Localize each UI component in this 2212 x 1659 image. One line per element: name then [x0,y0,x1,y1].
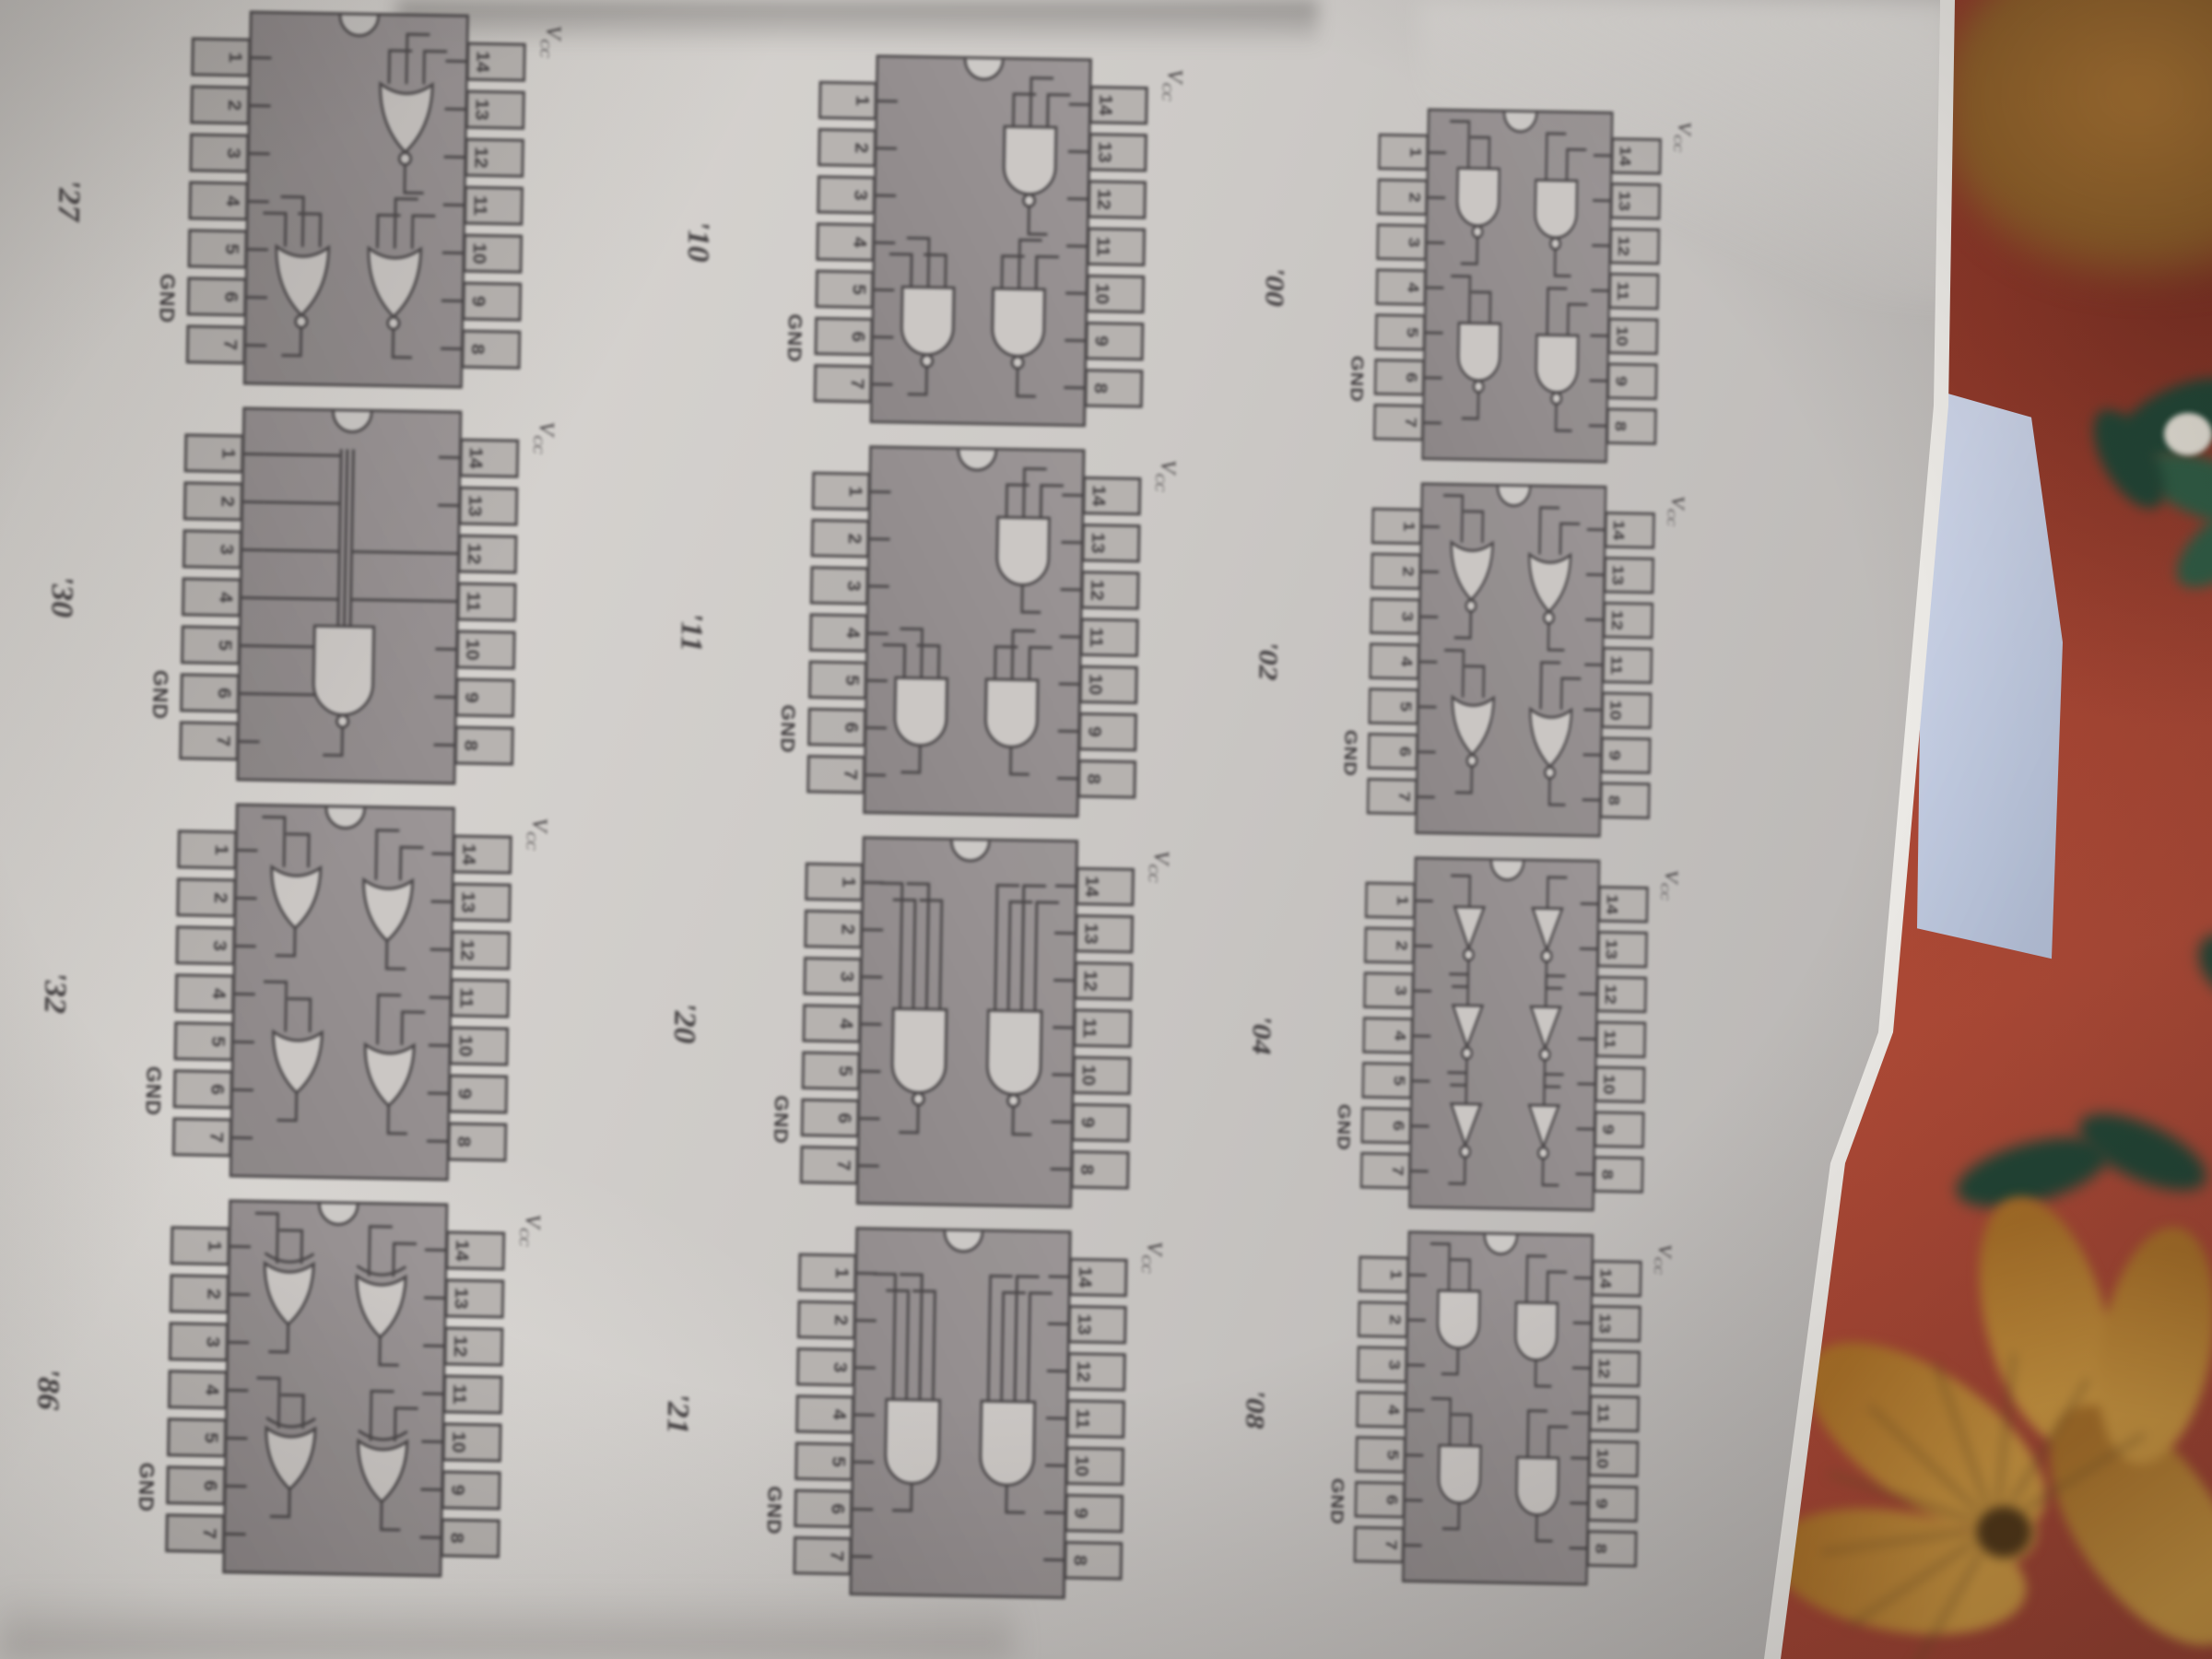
chip-body [243,11,469,389]
top-pin-row: 141312111098 [1600,512,1655,819]
pin-12: 12 [1067,1352,1126,1391]
pin-14: 14 [453,835,512,875]
chip-08: VCC1413121110981234567GND'08 [1198,1222,1677,1603]
pin-13: 13 [452,883,512,923]
nand-gate-icon [992,288,1044,357]
top-pin-row: 141312111098 [1593,886,1648,1194]
nand-gate-icon [901,287,954,355]
pin-10: 10 [1072,1056,1131,1095]
pin-7: 7 [1360,1152,1411,1189]
flower-center-icon [1971,1500,2037,1563]
gnd-label: GND [141,1066,165,1117]
gate-diagram [1402,1230,1594,1585]
gnd-label: GND [1347,356,1367,403]
pin-6: 6 [187,276,247,316]
pin-10: 10 [456,630,516,670]
pin-11: 11 [1073,1008,1132,1047]
pin-3: 3 [1370,597,1420,634]
pin-11: 11 [1066,1399,1125,1438]
dip-notch-icon [340,15,379,36]
bottom-pin-row: 1234567 [165,1226,229,1553]
vcc-label: VCC [1664,495,1688,526]
pin-6: 6 [794,1489,853,1528]
nand-gate-icon [1458,323,1500,381]
nor-gate-icon [1528,554,1571,612]
gnd-label: GND [1334,1104,1354,1151]
pin-2: 2 [176,877,236,917]
pin-4: 4 [802,1004,861,1042]
pin-12: 12 [465,138,524,178]
pin-4: 4 [188,181,248,220]
pin-14: 14 [1611,137,1662,174]
pin-11: 11 [1589,1395,1640,1432]
pin-3: 3 [169,1322,229,1361]
dip-notch-icon [958,450,995,470]
pin-2: 2 [1377,179,1428,216]
chip-name: '86 [27,1191,70,1588]
gnd-label: GND [147,670,171,721]
pin-2: 2 [818,128,877,167]
inv-gate-icon [1451,1104,1481,1147]
and-gate-icon [1516,1457,1559,1515]
pin-4: 4 [809,613,868,652]
xor-gate-icon [358,1441,407,1502]
pin-1: 1 [1359,1256,1409,1293]
xor-gate-icon [265,1428,315,1489]
and-gate-icon [985,679,1038,747]
pin-14: 14 [1076,867,1135,906]
pin-4: 4 [168,1370,228,1409]
xor-gate-icon [264,1264,313,1325]
pin-5: 5 [1361,1062,1412,1099]
pin-5: 5 [167,1418,227,1457]
pin-5: 5 [174,1021,234,1061]
and-gate-icon [980,1401,1034,1486]
pin-7: 7 [1354,1526,1405,1563]
and-gate-icon [885,1399,939,1484]
pin-9: 9 [448,1074,508,1113]
chip-name: '30 [41,398,84,795]
bottom-pin-row: 1234567 [793,1253,856,1576]
pin-1: 1 [805,863,864,901]
pin-9: 9 [1072,1103,1131,1142]
pin-2: 2 [811,519,870,558]
pin-14: 14 [1591,1260,1641,1297]
pin-9: 9 [1587,1485,1638,1522]
chip-name: '02 [1250,475,1288,848]
pin-6: 6 [801,1099,860,1137]
pin-6: 6 [173,1069,233,1109]
chip-body [1402,1230,1594,1585]
pin-7: 7 [179,721,239,760]
chip-00: VCC1413121110981234567GND'00 [1218,100,1696,480]
and-gate-icon [1439,1445,1481,1503]
chip-name: '21 [657,1218,700,1609]
top-pin-row: 141312111098 [1064,1258,1127,1581]
chip-cell: VCC1413121110981234567GND'32 [546,803,553,1199]
top-pin-row: 141312111098 [1606,137,1662,445]
dip-notch-icon [333,411,371,432]
chip-04: VCC1413121110981234567GND'04 [1205,848,1683,1229]
pin-5: 5 [808,661,867,700]
pin-6: 6 [1368,733,1418,770]
pin-10: 10 [1607,318,1658,355]
chip-cell: VCC1413121110981234567GND'21 [1161,1227,1168,1618]
inv-gate-icon [1528,1105,1559,1147]
chip-name: '27 [48,2,91,399]
chip-body [863,445,1085,818]
pin-14: 14 [1605,512,1655,548]
nor-gate-icon [1452,697,1494,755]
pin-7: 7 [806,755,865,794]
inv-gate-icon [1453,1006,1483,1048]
pin-7: 7 [165,1513,225,1553]
chip-name: '00 [1256,100,1294,474]
flower-top-right-icon [1945,0,2212,286]
chip-body [1415,482,1606,837]
gate-diagram [243,11,469,389]
gnd-label: GND [155,274,179,324]
pin-1: 1 [1365,882,1416,919]
photo-of-book-page: VCC1413121110981234567GND'00VCC141312111… [0,0,2212,1659]
bottom-pin-row: 1234567 [172,829,237,1157]
pin-7: 7 [814,364,873,403]
pin-1: 1 [177,829,237,869]
vcc-label: VCC [536,25,565,58]
or-gate-icon [364,1044,414,1106]
chip-10: VCC1413121110981234567GND'10 [633,45,1189,445]
ic-pinout-figure: VCC1413121110981234567GND'00VCC141312111… [0,0,1754,1620]
chip-body [1421,108,1613,463]
white-flower-icon [2164,413,2212,455]
chip-cell: VCC1413121110981234567GND'27 [559,11,567,407]
vcc-label: VCC [1137,1241,1165,1273]
pin-4: 4 [182,577,241,617]
top-pin-row: 141312111098 [1077,477,1141,799]
pin-9: 9 [1600,736,1651,773]
pin-4: 4 [1369,642,1419,679]
chip-name: '32 [34,794,77,1192]
nand-gate-icon [1004,126,1056,194]
pin-3: 3 [189,133,249,172]
gnd-label: GND [762,1486,786,1535]
gnd-label: GND [776,704,800,754]
top-pin-row: 141312111098 [1084,86,1147,408]
pin-3: 3 [1357,1346,1407,1382]
pin-5: 5 [802,1051,861,1089]
pin-8: 8 [1084,369,1143,407]
dip-notch-icon [1484,1235,1517,1254]
nor-gate-icon [276,246,329,315]
pin-14: 14 [1069,1258,1128,1297]
bottom-pin-row: 1234567 [814,81,877,404]
vcc-label: VCC [1159,69,1186,101]
pin-13: 13 [1075,914,1134,953]
pin-13: 13 [444,1278,504,1318]
pin-8: 8 [447,1122,507,1161]
gate-diagram [1408,856,1600,1211]
and-gate-icon [996,517,1049,585]
pin-8: 8 [1071,1150,1130,1189]
pin-1: 1 [1371,508,1422,545]
gate-diagram [870,54,1092,427]
vcc-label: VCC [515,1214,544,1247]
pin-11: 11 [1087,228,1146,266]
chip-body [236,406,462,784]
vcc-label: VCC [523,818,551,851]
chip-32: VCC1413121110981234567GND'32 [0,794,553,1199]
pin-1: 1 [184,433,244,473]
chip-cell: VCC1413121110981234567GND'08 [1670,1230,1677,1605]
chip-11: VCC1413121110981234567GND'11 [626,436,1182,836]
bottom-pin-row: 1234567 [800,863,864,1185]
pin-14: 14 [1082,477,1141,515]
pin-10: 10 [1065,1447,1124,1486]
chip-02: VCC1413121110981234567GND'02 [1211,474,1689,854]
pin-12: 12 [1596,976,1647,1013]
chip-body [870,54,1092,427]
chip-body [229,803,455,1181]
pin-4: 4 [1362,1017,1413,1053]
top-pin-row: 141312111098 [1071,867,1135,1190]
chip-name: '04 [1243,849,1281,1222]
nand-gate-icon [1535,335,1578,393]
pin-2: 2 [1371,553,1421,590]
bottom-pin-row: 1234567 [179,433,243,760]
top-pin-row: 141312111098 [461,42,525,370]
pin-10: 10 [1594,1066,1645,1103]
pin-9: 9 [441,1470,501,1510]
inv-gate-icon [1530,1006,1560,1049]
pin-5: 5 [188,229,248,268]
chip-21: VCC1413121110981234567GND'21 [612,1218,1168,1618]
nand-gate-icon [892,1008,947,1093]
pin-2: 2 [170,1274,229,1313]
pin-2: 2 [1364,927,1415,964]
bottom-pin-row: 1234567 [1360,882,1416,1190]
pin-6: 6 [814,317,873,356]
pin-14: 14 [466,42,526,82]
gnd-label: GND [1340,730,1360,777]
vcc-label: VCC [1145,850,1172,882]
pin-1: 1 [191,37,251,76]
top-pin-row: 141312111098 [441,1230,505,1558]
pin-9: 9 [462,282,522,322]
and-gate-icon [1438,1290,1480,1348]
chip-name: '11 [671,437,713,828]
and-gate-icon [895,677,947,746]
gate-diagram [849,1227,1071,1599]
chip-name: '20 [664,828,706,1218]
pin-9: 9 [1085,322,1144,360]
chip-cell: VCC1413121110981234567GND'20 [1168,836,1174,1227]
pin-13: 13 [465,90,525,130]
pin-5: 5 [1375,313,1426,350]
dip-notch-icon [326,807,365,829]
pin-3: 3 [1363,971,1414,1008]
dip-notch-icon [965,59,1003,79]
pin-7: 7 [186,324,246,364]
pin-11: 11 [1080,618,1139,656]
pin-12: 12 [1609,228,1660,265]
pin-10: 10 [1588,1440,1639,1477]
nand-gate-icon [313,626,374,715]
inv-gate-icon [1454,907,1485,949]
vcc-label: VCC [1651,1243,1675,1275]
pin-3: 3 [796,1347,855,1386]
vcc-label: VCC [529,421,558,454]
pin-12: 12 [457,535,517,574]
dip-notch-icon [1498,487,1531,506]
gnd-label: GND [1327,1478,1347,1525]
pin-9: 9 [1078,712,1137,751]
pin-7: 7 [793,1536,852,1575]
bottom-pin-row: 1234567 [186,37,251,364]
pin-6: 6 [1354,1481,1405,1518]
pin-2: 2 [797,1300,856,1339]
pin-5: 5 [815,270,874,309]
nand-gate-icon [987,1010,1041,1095]
pin-7: 7 [1373,404,1424,441]
pin-1: 1 [798,1253,857,1292]
pin-9: 9 [1606,363,1657,400]
bottom-pin-row: 1234567 [806,472,870,794]
pin-11: 11 [1602,647,1653,684]
pin-9: 9 [455,678,515,718]
chip-cell: VCC1413121110981234567GND'00 [1689,108,1696,482]
inv-gate-icon [1532,908,1562,950]
pin-2: 2 [183,481,243,521]
leaf-icon [2185,920,2212,1016]
pin-3: 3 [1376,224,1427,261]
pin-3: 3 [182,529,242,569]
pin-3: 3 [817,175,876,214]
gate-diagram [236,406,462,784]
pin-12: 12 [1074,961,1133,1000]
chip-body [849,1227,1071,1599]
gnd-label: GND [134,1463,158,1513]
nand-gate-icon [1535,180,1577,238]
pin-11: 11 [457,582,517,622]
chip-27: VCC1413121110981234567GND'27 [3,1,567,406]
or-gate-icon [362,880,412,942]
chip-20: VCC1413121110981234567GND'20 [619,827,1175,1227]
pin-8: 8 [1064,1541,1123,1580]
dip-notch-icon [1491,861,1524,880]
gnd-label: GND [782,313,806,363]
pin-8: 8 [461,330,521,370]
chip-cell: VCC1413121110981234567GND'04 [1677,856,1683,1230]
gate-diagram [222,1199,448,1577]
pin-7: 7 [1367,778,1418,815]
pin-13: 13 [1082,524,1141,562]
pin-12: 12 [1081,571,1140,609]
pin-14: 14 [445,1230,505,1270]
chip-body [222,1199,448,1577]
pin-8: 8 [1606,407,1657,444]
pin-8: 8 [1593,1156,1643,1193]
pin-11: 11 [1595,1021,1646,1058]
gate-diagram [229,803,455,1181]
pin-4: 4 [174,973,234,1013]
chip-body [856,836,1078,1208]
xor-gate-icon [356,1276,406,1337]
pin-7: 7 [800,1146,859,1184]
pin-4: 4 [816,222,875,261]
chip-30: VCC1413121110981234567GND'30 [0,397,559,803]
dip-notch-icon [1504,112,1537,132]
pin-5: 5 [181,625,241,665]
pin-10: 10 [463,234,523,274]
pin-10: 10 [449,1026,509,1065]
pin-1: 1 [818,81,877,120]
pin-10: 10 [1086,275,1145,313]
pin-3: 3 [810,566,869,605]
pin-7: 7 [172,1117,232,1157]
pin-13: 13 [1068,1305,1127,1344]
or-gate-icon [271,867,321,929]
top-pin-row: 141312111098 [447,835,512,1162]
pin-1: 1 [1378,134,1429,171]
pin-14: 14 [1598,886,1649,923]
pin-11: 11 [443,1374,503,1414]
gate-diagram [863,445,1085,818]
pin-10: 10 [442,1422,502,1462]
pin-2: 2 [190,85,250,124]
pin-11: 11 [1608,273,1659,310]
pin-8: 8 [454,726,514,766]
pin-6: 6 [166,1465,226,1505]
and-gate-icon [1515,1302,1558,1360]
pin-4: 4 [1356,1391,1406,1428]
dip-notch-icon [319,1204,358,1225]
pin-5: 5 [1368,688,1418,724]
top-pin-row: 141312111098 [1586,1260,1641,1568]
chip-cell: VCC1413121110981234567GND'30 [553,406,560,803]
pin-13: 13 [1591,1305,1641,1342]
bottom-pin-row: 1234567 [1354,1256,1409,1564]
pin-12: 12 [1603,602,1653,639]
nand-gate-icon [1457,168,1500,226]
pin-2: 2 [804,910,863,948]
pin-5: 5 [1355,1436,1406,1473]
pin-14: 14 [459,439,519,478]
pin-3: 3 [803,957,862,995]
pin-14: 14 [1089,86,1148,124]
dip-notch-icon [951,841,989,861]
or-gate-icon [272,1031,322,1093]
vcc-label: VCC [1657,869,1681,900]
gate-diagram [1415,482,1606,837]
pin-10: 10 [1601,692,1652,729]
pin-1: 1 [171,1226,230,1265]
chip-cell: VCC1413121110981234567GND'10 [1182,54,1188,445]
pin-13: 13 [1088,133,1147,171]
pin-8: 8 [441,1518,500,1558]
bottom-pin-row: 1234567 [1367,508,1422,816]
nor-gate-icon [368,248,421,317]
chip-cell: VCC1413121110981234567GND'02 [1683,482,1689,856]
nor-gate-icon [1451,542,1493,600]
pin-9: 9 [1065,1494,1124,1533]
pin-13: 13 [1604,557,1654,594]
vcc-label: VCC [1151,459,1179,491]
nor-gate-icon [1529,709,1571,767]
pin-11: 11 [464,186,524,226]
chip-cell: VCC1413121110981234567GND'11 [1174,445,1181,836]
gate-diagram [856,836,1078,1208]
pin-6: 6 [180,673,240,712]
